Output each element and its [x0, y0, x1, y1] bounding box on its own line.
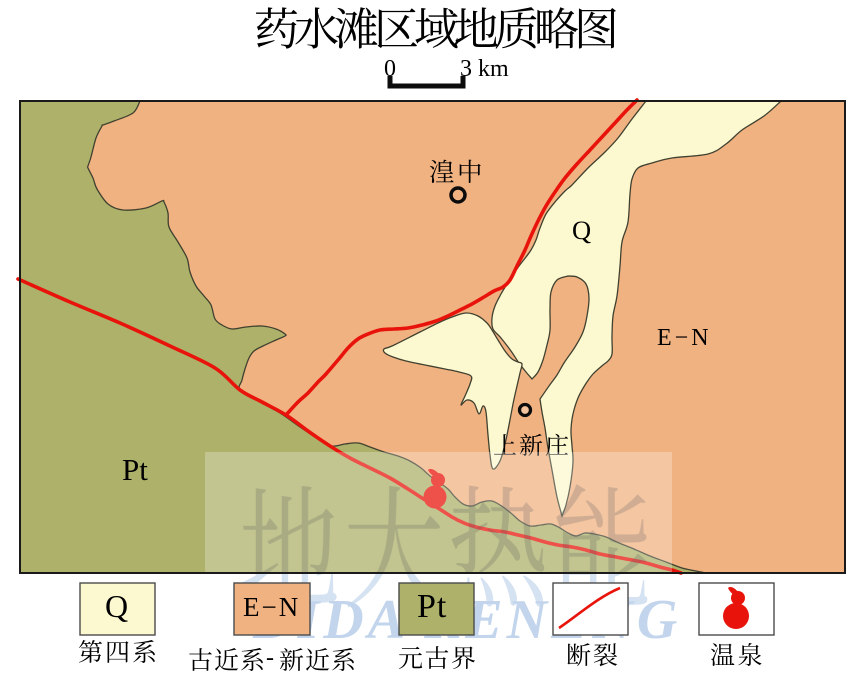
svg-text:E−N: E−N	[243, 592, 300, 622]
svg-text:Pt: Pt	[122, 452, 148, 487]
svg-text:Pt: Pt	[417, 588, 447, 625]
svg-text:-: -	[266, 645, 274, 671]
svg-text:E−N: E−N	[657, 325, 712, 351]
svg-text:Q: Q	[105, 588, 128, 624]
svg-text:3 km: 3 km	[460, 56, 509, 82]
svg-text:Q: Q	[572, 215, 591, 245]
